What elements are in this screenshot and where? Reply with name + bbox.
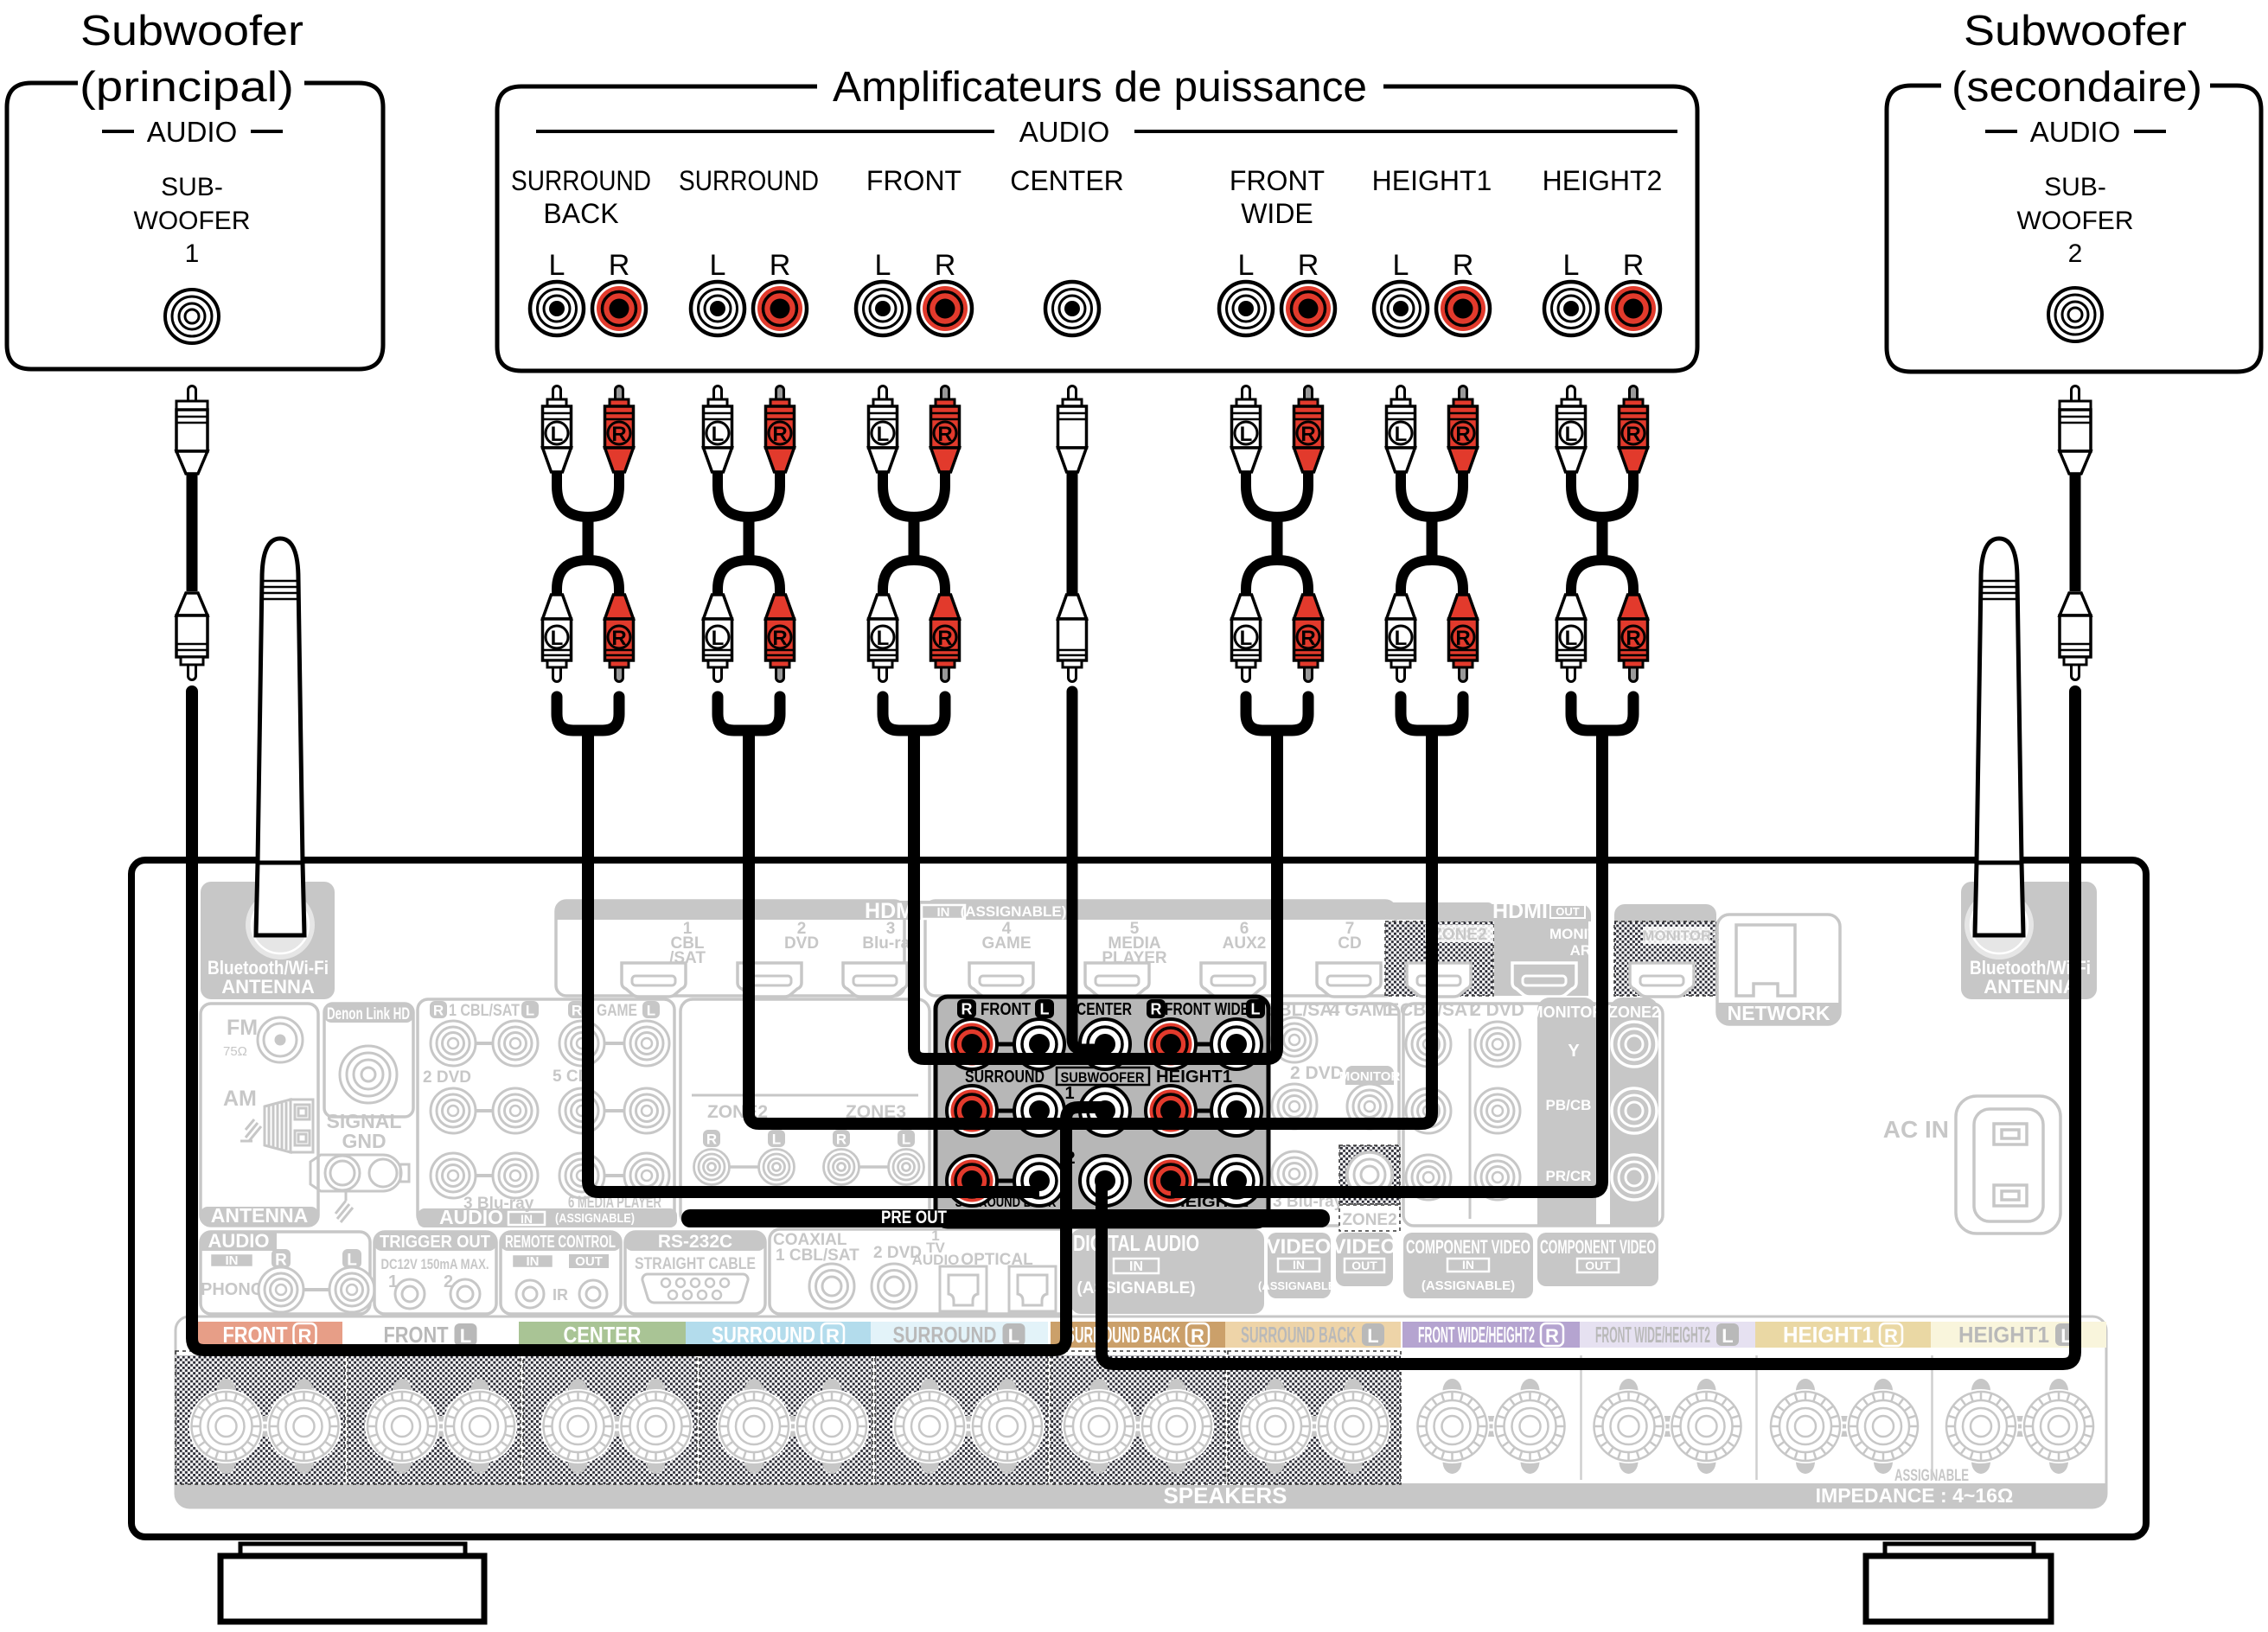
- svg-text:CD: CD: [1338, 934, 1361, 953]
- svg-text:PR/CR: PR/CR: [1546, 1168, 1592, 1184]
- svg-text:SUB-: SUB-: [2044, 173, 2106, 201]
- svg-text:ANTENNA: ANTENNA: [1984, 976, 2077, 998]
- svg-text:L: L: [549, 249, 565, 282]
- svg-text:R: R: [1453, 249, 1474, 282]
- svg-text:R: R: [1298, 249, 1319, 282]
- svg-text:AUDIO: AUDIO: [1019, 116, 1110, 148]
- svg-text:SURROUND BACK: SURROUND BACK: [1241, 1322, 1356, 1348]
- svg-text:REMOTE CONTROL: REMOTE CONTROL: [505, 1233, 616, 1252]
- svg-text:WOOFER: WOOFER: [134, 207, 251, 235]
- svg-text:IN: IN: [1293, 1258, 1305, 1272]
- svg-text:Amplificateurs de puissance: Amplificateurs de puissance: [833, 64, 1367, 111]
- svg-text:DVD: DVD: [784, 934, 819, 953]
- svg-text:GND: GND: [342, 1130, 386, 1152]
- svg-text:ANTENNA: ANTENNA: [211, 1204, 308, 1227]
- svg-text:AM: AM: [223, 1087, 257, 1111]
- svg-text:FRONT: FRONT: [981, 1000, 1031, 1019]
- svg-text:Subwoofer: Subwoofer: [1964, 8, 2187, 54]
- svg-text:STRAIGHT CABLE: STRAIGHT CABLE: [635, 1255, 756, 1273]
- svg-text:1 CBL/SAT: 1 CBL/SAT: [449, 1002, 520, 1020]
- svg-text:R: R: [1191, 1325, 1204, 1347]
- svg-text:1: 1: [1064, 1084, 1074, 1103]
- svg-text:TRIGGER OUT: TRIGGER OUT: [380, 1233, 490, 1252]
- svg-text:HEIGHT2: HEIGHT2: [1543, 165, 1663, 196]
- svg-text:HDMI: HDMI: [1492, 899, 1548, 923]
- svg-text:R: R: [770, 249, 791, 282]
- svg-text:AUDIO: AUDIO: [208, 1230, 270, 1252]
- svg-text:SURROUND: SURROUND: [679, 165, 819, 196]
- svg-text:CENTER: CENTER: [1077, 1000, 1132, 1019]
- svg-text:R: R: [826, 1325, 840, 1347]
- svg-text:R: R: [298, 1325, 312, 1347]
- svg-text:OUT: OUT: [575, 1254, 603, 1269]
- svg-text:FRONT WIDE/HEIGHT2: FRONT WIDE/HEIGHT2: [1418, 1322, 1535, 1348]
- svg-text:L: L: [1367, 1325, 1378, 1347]
- svg-text:ZONE2: ZONE2: [1608, 1004, 1660, 1021]
- svg-text:L: L: [1722, 1325, 1733, 1347]
- svg-text:HEIGHT1: HEIGHT1: [1783, 1322, 1874, 1348]
- svg-text:HEIGHT1: HEIGHT1: [1372, 165, 1492, 196]
- svg-text:CENTER: CENTER: [1010, 165, 1124, 196]
- svg-text:2: 2: [2068, 239, 2083, 268]
- svg-text:FRONT WIDE/HEIGHT2: FRONT WIDE/HEIGHT2: [1595, 1322, 1710, 1348]
- svg-text:WOOFER: WOOFER: [2017, 207, 2134, 235]
- svg-text:AUX2: AUX2: [1223, 934, 1267, 953]
- svg-text:R: R: [1884, 1325, 1898, 1347]
- svg-text:1 CBL/SAT: 1 CBL/SAT: [776, 1246, 859, 1265]
- svg-text:FRONT WIDE: FRONT WIDE: [1165, 1000, 1249, 1019]
- svg-text:MONITOR: MONITOR: [1530, 1004, 1604, 1021]
- svg-text:OUT: OUT: [1556, 905, 1580, 918]
- svg-text:DIGITAL AUDIO: DIGITAL AUDIO: [1073, 1230, 1199, 1256]
- svg-text:PHONO: PHONO: [201, 1280, 264, 1299]
- svg-text:75Ω: 75Ω: [223, 1044, 247, 1059]
- svg-text:FRONT: FRONT: [866, 165, 962, 196]
- svg-text:L: L: [772, 1132, 781, 1148]
- svg-text:AUDIO: AUDIO: [147, 116, 238, 148]
- svg-text:IN: IN: [937, 905, 950, 920]
- svg-text:ZONE2: ZONE2: [1432, 926, 1486, 944]
- svg-text:(ASSIGNABLE): (ASSIGNABLE): [1258, 1279, 1339, 1292]
- svg-text:HEIGHT1: HEIGHT1: [1958, 1322, 2049, 1348]
- svg-text:L: L: [526, 1003, 534, 1019]
- svg-text:R: R: [1623, 249, 1645, 282]
- svg-text:IN: IN: [226, 1253, 239, 1268]
- svg-text:FM: FM: [227, 1016, 258, 1040]
- svg-text:R: R: [935, 249, 956, 282]
- svg-text:(principal): (principal): [80, 64, 294, 111]
- svg-text:Subwoofer: Subwoofer: [80, 8, 303, 54]
- svg-text:IN: IN: [521, 1212, 533, 1226]
- svg-text:CENTER: CENTER: [564, 1322, 642, 1348]
- svg-text:L: L: [710, 249, 726, 282]
- svg-text:L: L: [875, 249, 891, 282]
- svg-text:OUT: OUT: [1585, 1259, 1611, 1272]
- svg-text:R: R: [706, 1132, 717, 1148]
- svg-text:VIDEO: VIDEO: [1267, 1235, 1332, 1259]
- svg-text:SURROUND: SURROUND: [511, 165, 651, 196]
- svg-text:R: R: [609, 249, 630, 282]
- svg-text:RS-232C: RS-232C: [658, 1232, 732, 1252]
- svg-text:MONITOR2: MONITOR2: [1642, 928, 1719, 944]
- svg-text:IN: IN: [1129, 1259, 1143, 1274]
- svg-text:R: R: [1545, 1325, 1559, 1347]
- svg-text:L: L: [647, 1003, 655, 1019]
- svg-text:L: L: [902, 1132, 910, 1148]
- svg-text:(ASSIGNABLE): (ASSIGNABLE): [961, 903, 1067, 920]
- svg-text:Y: Y: [1568, 1042, 1580, 1061]
- svg-text:(secondaire): (secondaire): [1952, 64, 2202, 111]
- svg-text:MONITOR: MONITOR: [1339, 1069, 1401, 1084]
- svg-text:R: R: [962, 1001, 973, 1018]
- svg-text:VIDEO: VIDEO: [1332, 1235, 1397, 1259]
- svg-text:GAME: GAME: [982, 934, 1032, 953]
- svg-text:ZONE2: ZONE2: [1342, 1211, 1396, 1229]
- svg-text:L: L: [1563, 249, 1580, 282]
- svg-text:2 DVD: 2 DVD: [1290, 1063, 1344, 1083]
- svg-text:R: R: [836, 1132, 847, 1148]
- svg-text:SURROUND: SURROUND: [893, 1322, 997, 1348]
- svg-text:BACK: BACK: [543, 198, 618, 229]
- svg-text:DC12V 150mA MAX.: DC12V 150mA MAX.: [381, 1256, 489, 1272]
- svg-text:L: L: [1040, 1001, 1050, 1018]
- svg-text:PRE OUT: PRE OUT: [881, 1208, 947, 1227]
- svg-text:IR: IR: [553, 1286, 568, 1304]
- svg-text:WIDE: WIDE: [1241, 198, 1313, 229]
- svg-text:IN: IN: [1462, 1258, 1474, 1272]
- svg-text:R: R: [1151, 1001, 1162, 1018]
- svg-text:COMPONENT VIDEO: COMPONENT VIDEO: [1540, 1236, 1656, 1258]
- svg-text:L: L: [1251, 1001, 1261, 1018]
- svg-text:SPEAKERS: SPEAKERS: [1163, 1482, 1287, 1508]
- svg-text:PB/CB: PB/CB: [1546, 1097, 1592, 1113]
- svg-text:R: R: [433, 1003, 444, 1019]
- svg-text:FRONT: FRONT: [384, 1322, 449, 1348]
- svg-text:SURROUND BACK: SURROUND BACK: [1066, 1322, 1180, 1348]
- svg-text:SURROUND: SURROUND: [712, 1322, 815, 1348]
- svg-text:(ASSIGNABLE): (ASSIGNABLE): [1077, 1279, 1195, 1297]
- svg-text:L: L: [1238, 249, 1255, 282]
- svg-text:COMPONENT VIDEO: COMPONENT VIDEO: [1406, 1236, 1530, 1258]
- svg-text:L: L: [1008, 1325, 1019, 1347]
- svg-text:L: L: [460, 1325, 471, 1347]
- svg-text:ANTENNA: ANTENNA: [221, 976, 315, 998]
- svg-text:FRONT: FRONT: [1230, 165, 1325, 196]
- svg-text:(ASSIGNABLE): (ASSIGNABLE): [1421, 1278, 1515, 1293]
- svg-text:NETWORK: NETWORK: [1728, 1002, 1830, 1024]
- svg-text:2 DVD: 2 DVD: [1471, 1000, 1524, 1020]
- svg-text:FRONT: FRONT: [223, 1322, 288, 1348]
- svg-text:IMPEDANCE : 4~16Ω: IMPEDANCE : 4~16Ω: [1816, 1484, 2014, 1507]
- svg-text:R: R: [572, 1003, 582, 1019]
- svg-text:3 Blu-ray: 3 Blu-ray: [463, 1195, 534, 1213]
- svg-text:Denon Link HD: Denon Link HD: [327, 1005, 410, 1023]
- svg-text:IN: IN: [527, 1254, 540, 1269]
- svg-text:OUT: OUT: [1351, 1259, 1377, 1272]
- svg-text:(ASSIGNABLE): (ASSIGNABLE): [555, 1211, 635, 1226]
- svg-text:1: 1: [185, 239, 200, 268]
- svg-text:SUB-: SUB-: [161, 173, 223, 201]
- svg-text:2 DVD: 2 DVD: [423, 1068, 471, 1087]
- svg-text:AC IN: AC IN: [1883, 1116, 1949, 1143]
- svg-text:AUDIO: AUDIO: [2030, 116, 2121, 148]
- svg-text:L: L: [1393, 249, 1409, 282]
